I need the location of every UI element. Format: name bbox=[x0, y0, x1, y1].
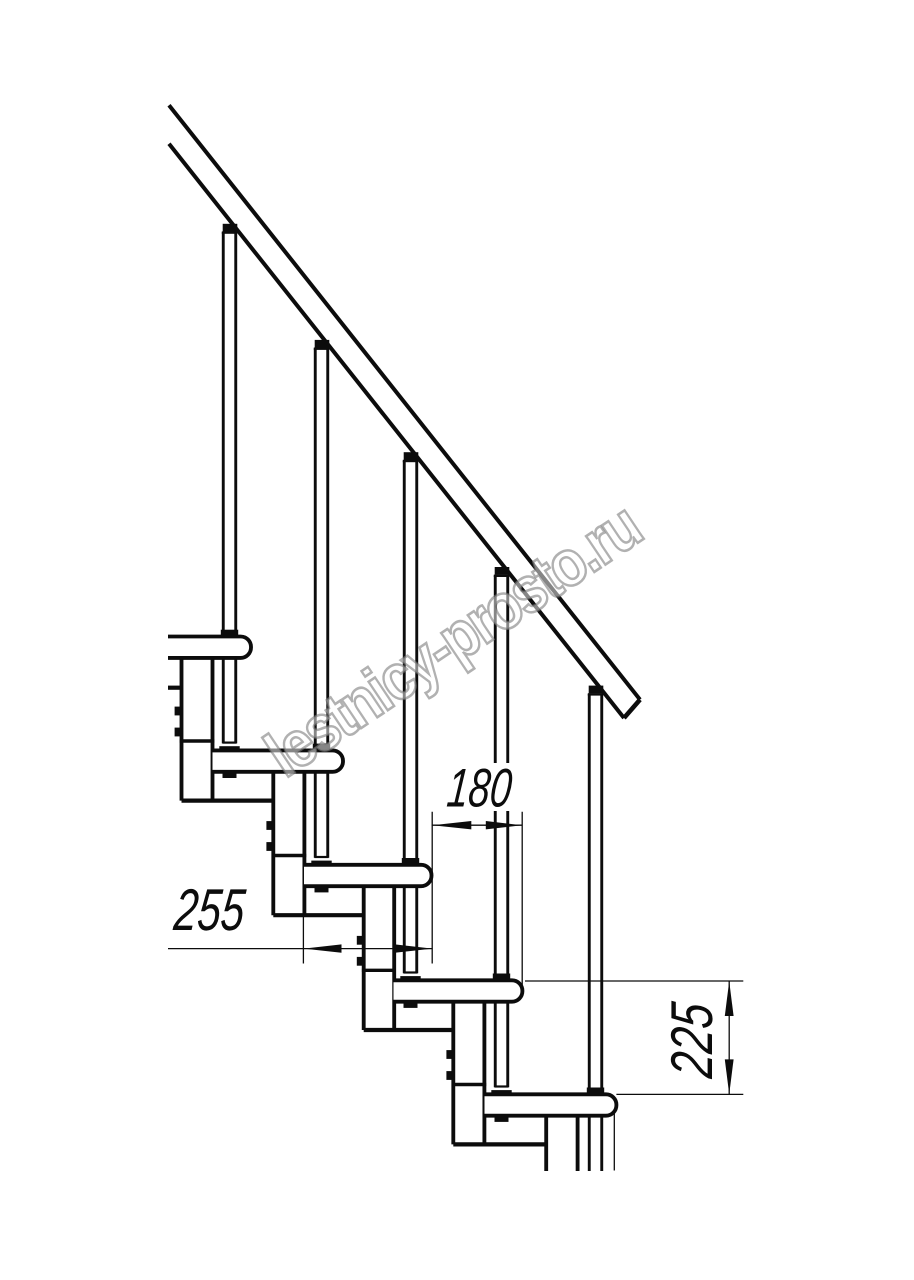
svg-text:180: 180 bbox=[445, 758, 515, 819]
svg-text:255: 255 bbox=[171, 877, 249, 943]
svg-text:225: 225 bbox=[660, 999, 725, 1081]
